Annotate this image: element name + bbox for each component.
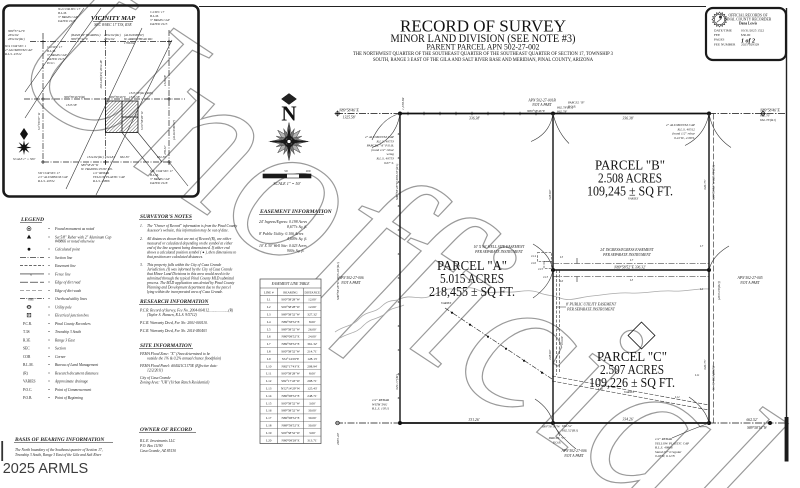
svg-text:50: 50 [284, 169, 288, 173]
svg-text:=: = [48, 297, 50, 301]
svg-text:P.O.B.: P.O.B. [567, 105, 576, 109]
svg-text:SURVEYOR'S NOTES: SURVEYOR'S NOTES [140, 214, 192, 220]
svg-text:R.3E: R.3E [23, 338, 31, 342]
svg-text:03/31/2025 1522: 03/31/2025 1522 [741, 29, 764, 33]
svg-text:336.38': 336.38' [623, 117, 634, 121]
svg-text:Zoning Area: "UR" (Urba: Zoning Area: "UR" (Urban Ranch Residenti… [140, 381, 210, 385]
svg-text:662.52': 662.52' [747, 418, 758, 422]
svg-text:SCALE 1" = 50': SCALE 1" = 50' [273, 181, 300, 186]
svg-text:L7: L7 [629, 258, 634, 262]
svg-text:L13: L13 [266, 387, 272, 391]
svg-text:PAGES: PAGES [714, 38, 725, 42]
svg-text:24' INGRESS/EGRESS EASEMENT: 24' INGRESS/EGRESS EASEMENT [600, 248, 654, 252]
svg-text:S82°17'43"W: S82°17'43"W [281, 379, 300, 383]
svg-text:x: x [398, 395, 400, 400]
svg-text:Township 3 South: Township 3 South [55, 330, 81, 334]
svg-text:L14: L14 [530, 254, 536, 258]
svg-text:T.3S: T.3S [23, 330, 30, 334]
svg-text:N89°58'52"E 336.32': N89°58'52"E 336.32' [613, 265, 646, 269]
svg-text:=: = [48, 314, 50, 318]
svg-text:NOT A PART: NOT A PART [563, 454, 584, 458]
svg-text:8.00': 8.00' [309, 320, 316, 324]
svg-text:N89°57'41"E: N89°57'41"E [70, 37, 88, 41]
svg-text:8' Public Utility: 0.106 Acre: 8' Public Utility: 0.106 Acres [259, 232, 304, 236]
svg-text:=: = [48, 272, 50, 276]
svg-text:x: x [398, 323, 400, 328]
svg-text:x: x [398, 275, 400, 280]
svg-text:SITE INFORMATION: SITE INFORMATION [140, 343, 193, 349]
svg-text:228.69': 228.69' [548, 349, 552, 360]
svg-text:24' Ingress/Egress: 0.198 Acr: 24' Ingress/Egress: 0.198 Acres [259, 220, 308, 224]
svg-text:S00°58'28"W 658.33'(R1): S00°58'28"W 658.33'(R1) [395, 163, 399, 200]
svg-text:The "Owner of Record" informat: The "Owner of Record" information is fro… [147, 224, 238, 228]
svg-text:SOUTH, RANGE 3 EAST OF THE GIL: SOUTH, RANGE 3 EAST OF THE GILA AND SALT… [373, 58, 593, 63]
svg-text:FEMA Flood Zone: "X" (Area det: FEMA Flood Zone: "X" (Area determined to… [139, 352, 211, 356]
svg-text:N89°58'46"E: N89°58'46"E [526, 109, 546, 113]
svg-text:125.43': 125.43' [307, 387, 317, 391]
svg-text:1325.58': 1325.58' [66, 103, 77, 107]
svg-text:8' PUBLIC UTILITY EASEMENT: 8' PUBLIC UTILITY EASEMENT [566, 303, 617, 307]
svg-text:S52°14'29"E: S52°14'29"E [282, 357, 299, 361]
svg-text:Dana Lewis: Dana Lewis [739, 22, 758, 26]
svg-text:L20: L20 [266, 438, 272, 442]
svg-text:submitted through the typical: submitted through the typical Pinal Coun… [147, 277, 234, 281]
svg-text:N: N [281, 102, 296, 126]
svg-text:Pinal County Recorders: Pinal County Recorders [54, 322, 91, 326]
svg-text:1326.08': 1326.08' [163, 75, 167, 86]
svg-text:L4: L4 [267, 320, 271, 324]
svg-text:P.C.R.: P.C.R. [23, 322, 32, 326]
svg-text:S00°58'52"W: S00°58'52"W [281, 350, 300, 354]
svg-text:326.75': 326.75' [703, 179, 707, 190]
svg-text:L9: L9 [267, 357, 271, 361]
svg-text:1325.58': 1325.58' [129, 95, 140, 99]
svg-text:x: x [398, 155, 400, 160]
svg-text:Approximate drainage: Approximate drainage [54, 380, 89, 384]
svg-text:process. The MLD application w: process. The MLD application was denied … [146, 281, 235, 285]
svg-text:N89°58'52"E: N89°58'52"E [281, 320, 299, 324]
svg-text:=: = [48, 248, 50, 252]
svg-text:SCALE 1" = 500': SCALE 1" = 500' [13, 157, 36, 161]
svg-text:=: = [48, 396, 50, 400]
svg-text:2655.20': 2655.20' [336, 433, 340, 445]
svg-text:Electrical junction box: Electrical junction box [54, 314, 89, 318]
svg-text:=: = [48, 289, 50, 293]
svg-text:L5: L5 [267, 327, 271, 331]
svg-text:$30.00: $30.00 [741, 33, 751, 37]
svg-text:L10: L10 [266, 364, 272, 368]
svg-text:DATED 1915: DATED 1915 [149, 22, 168, 26]
svg-text:662.30': 662.30' [120, 155, 130, 159]
svg-text:1325.58': 1325.58' [343, 116, 356, 120]
svg-text:N80°08'52"E: N80°08'52"E [281, 416, 299, 420]
svg-text:P.O.C.: P.O.C. [46, 61, 56, 65]
svg-text:Fence line: Fence line [54, 272, 71, 276]
svg-text:P.O.C.: P.O.C. [23, 388, 32, 392]
svg-text:1324.84'(R1) 1324.84': 1324.84'(R1) 1324.84' [87, 155, 116, 159]
svg-text:12.00': 12.00' [308, 298, 317, 302]
svg-text:R.L.S. 49866: R.L.S. 49866 [92, 179, 110, 183]
svg-text:VICINITY MAP: VICINITY MAP [91, 15, 136, 22]
svg-text:lying within the incorporated: lying within the incorporated area of Ca… [147, 290, 223, 294]
svg-text:PARENT PARCEL APN 502-27-002: PARENT PARCEL APN 502-27-002 [427, 43, 540, 52]
svg-text:662.76'(R1): 662.76'(R1) [760, 118, 777, 122]
svg-text:336.38': 336.38' [469, 117, 480, 121]
svg-text:=: = [48, 227, 50, 231]
svg-text:N89°58'52"E: N89°58'52"E [281, 342, 299, 346]
svg-text:LEGEND: LEGEND [20, 217, 44, 223]
svg-text:VARIES: VARIES [628, 197, 639, 201]
svg-text:N80°08'28"E: N80°08'28"E [281, 438, 299, 442]
svg-text:S00°58'28"W: S00°58'28"W [281, 305, 300, 309]
svg-text:L18: L18 [266, 424, 272, 428]
svg-text:N52°14'29"W: N52°14'29"W [281, 387, 301, 391]
svg-text:end of the line segment being: end of the line segment being dimensione… [147, 246, 230, 250]
svg-text:2.: 2. [140, 237, 143, 241]
svg-text:214.71': 214.71' [307, 350, 317, 354]
svg-text:S00°58'52"W 328.75'(R1): S00°58'52"W 328.75'(R1) [712, 164, 716, 200]
svg-text:(ALIGNMENT): (ALIGNMENT) [172, 120, 176, 140]
svg-text:12.00': 12.00' [308, 305, 317, 309]
svg-text:10' X 30' WELL SITE EASEMENT: 10' X 30' WELL SITE EASEMENT [474, 245, 526, 249]
svg-text:328.69': 328.69' [548, 189, 552, 200]
svg-text:BEARING: BEARING [283, 290, 298, 294]
svg-text:N80°08'52"E: N80°08'52"E [281, 335, 299, 339]
svg-text:Calculated point: Calculated point [55, 248, 81, 252]
svg-text:R.L.S. 43512: R.L.S. 43512 [4, 52, 22, 56]
svg-text:BASIS OF BEARING INFORMATION: BASIS OF BEARING INFORMATION [14, 437, 105, 443]
svg-text:L17: L17 [266, 416, 272, 420]
svg-text:L11: L11 [694, 373, 700, 377]
svg-text:100: 100 [305, 169, 310, 173]
svg-text:x: x [398, 347, 400, 352]
svg-text:P.O. Box 11190: P.O. Box 11190 [139, 444, 163, 448]
svg-text:=: = [48, 371, 50, 375]
svg-text:S89°58'16"W: S89°58'16"W [542, 425, 561, 429]
svg-text:that position are calculated d: that position are calculated distances. [147, 255, 203, 259]
svg-text:313.71': 313.71' [307, 438, 317, 442]
svg-text:128.13': 128.13' [307, 357, 317, 361]
svg-text:x: x [398, 131, 400, 136]
svg-text:Found monument as noted: Found monument as noted [54, 227, 94, 231]
svg-text:S 00°58'28" W: S 00°58'28" W [140, 111, 144, 130]
svg-text:B.L.M.: B.L.M. [23, 363, 34, 367]
svg-text:Point of Commencement: Point of Commencement [54, 388, 92, 392]
svg-text:662.52'(R1): 662.52'(R1) [562, 429, 579, 433]
svg-text:=: = [48, 330, 50, 334]
svg-text:30.00': 30.00' [308, 416, 317, 420]
svg-text:331.26': 331.26' [469, 418, 480, 422]
svg-text:EASEMENT INFORMATION: EASEMENT INFORMATION [259, 209, 333, 215]
svg-text:DATE/TIME: DATE/TIME [714, 29, 732, 33]
svg-text:208.71': 208.71' [307, 379, 317, 383]
svg-text:=: = [48, 322, 50, 326]
svg-text:FEE: FEE [714, 33, 720, 37]
svg-text:2654.48'(R1) 2654.48': 2654.48'(R1) 2654.48' [99, 60, 103, 89]
svg-text:Edge of dirt wash: Edge of dirt wash [54, 289, 81, 293]
svg-text:=: = [48, 281, 50, 285]
svg-text:RESEARCH INFORMATION: RESEARCH INFORMATION [139, 299, 210, 305]
svg-text:334.26': 334.26' [623, 418, 634, 422]
svg-text:12/2/2011): 12/2/2011) [147, 369, 164, 373]
svg-text:L3: L3 [629, 278, 634, 282]
svg-text:N. 40' ROADWAY: N. 40' ROADWAY [712, 365, 716, 391]
svg-text:DATED 1918: DATED 1918 [149, 181, 168, 185]
svg-text:=: = [48, 347, 50, 351]
svg-text:S00°58'28"W: S00°58'28"W [281, 298, 300, 302]
svg-text:DATED 1915: DATED 1915 [57, 19, 76, 23]
svg-text:Utility pole: Utility pole [55, 305, 72, 309]
svg-text:Range 3 East: Range 3 East [54, 338, 76, 342]
svg-text:S00°58'28"W: S00°58'28"W [281, 372, 300, 376]
svg-text:Overhead utility lines: Overhead utility lines [55, 297, 87, 301]
svg-text:30.00': 30.00' [308, 424, 317, 428]
svg-text:329.17'(M): 329.17'(M) [395, 374, 399, 390]
svg-text:P.O.B.: P.O.B. [552, 441, 561, 445]
svg-text:N89°58'46"E(R): N89°58'46"E(R) [63, 95, 85, 99]
svg-text:0.67' S.: 0.67' S. [384, 161, 394, 165]
svg-text:2652.64'(R1): 2652.64'(R1) [8, 37, 25, 41]
svg-text:662.52': 662.52' [562, 424, 572, 428]
svg-text:2652.64': 2652.64' [104, 37, 115, 41]
svg-text:S00°58'52"W: S00°58'52"W [281, 431, 300, 435]
svg-text:S89°58'16"W: S89°58'16"W [747, 426, 768, 430]
svg-text:30.00': 30.00' [308, 409, 317, 413]
svg-text:This property falls within the: This property falls within the City of C… [147, 263, 222, 267]
svg-text:© 2025 ARMLS: © 2025 ARMLS [0, 461, 88, 477]
svg-text:24.00': 24.00' [308, 335, 317, 339]
svg-text:1766.64': 1766.64' [124, 41, 135, 45]
svg-text:N82°17'43"E: N82°17'43"E [281, 364, 299, 368]
svg-text:=: = [48, 388, 50, 392]
svg-text:outside the 1% & 0.2% annual c: outside the 1% & 0.2% annual chance floo… [147, 357, 222, 361]
svg-text:L3: L3 [267, 313, 271, 317]
svg-text:L12: L12 [266, 379, 272, 383]
svg-text:=: = [48, 355, 50, 359]
svg-text:326.75': 326.75' [703, 359, 707, 370]
svg-text:x: x [398, 251, 400, 256]
svg-text:THE NORTHWEST QUARTER OF THE S: THE NORTHWEST QUARTER OF THE SOUTHEAST Q… [353, 52, 613, 57]
svg-text:3.00': 3.00' [309, 431, 316, 435]
svg-text:(R): (R) [23, 371, 29, 375]
svg-text:Planning and Development depar: Planning and Development department due … [146, 286, 231, 290]
svg-text:L16: L16 [266, 409, 272, 413]
svg-text:Section line: Section line [55, 256, 73, 260]
svg-text:that Minor Land Divisions in t: that Minor Land Divisions in this area w… [147, 272, 230, 276]
svg-text:APN 502-27-006: APN 502-27-006 [560, 449, 586, 453]
svg-text:L2: L2 [699, 287, 704, 291]
svg-text:PER SEPARATE INSTRUMENT: PER SEPARATE INSTRUMENT [566, 308, 616, 312]
svg-text:COR: COR [23, 355, 31, 359]
svg-text:327.32': 327.32' [307, 313, 317, 317]
svg-text:x: x [398, 203, 400, 208]
svg-text:x: x [398, 299, 400, 304]
svg-text:APN 502-27-001B: APN 502-27-001B [527, 99, 556, 103]
svg-text:L14: L14 [266, 394, 272, 398]
svg-text:L13: L13 [542, 275, 548, 279]
svg-text:VARIES: VARIES [624, 390, 635, 394]
svg-text:8.00': 8.00' [309, 372, 316, 376]
svg-text:R.L.S. 10511: R.L.S. 10511 [371, 407, 390, 411]
svg-text:Section: Section [55, 347, 66, 351]
svg-text:L8: L8 [556, 326, 560, 331]
svg-text:NOT A PART: NOT A PART [531, 103, 552, 107]
svg-text:S00°58'52"W: S00°58'52"W [281, 401, 300, 405]
svg-text:x: x [398, 227, 400, 232]
svg-text:=: = [48, 235, 50, 239]
svg-text:=: = [48, 256, 50, 260]
svg-text:26.00': 26.00' [308, 327, 317, 331]
svg-text:S89°58'52"W: S89°58'52"W [281, 313, 300, 317]
svg-text:=: = [48, 338, 50, 342]
svg-text:N80°08'52"E: N80°08'52"E [281, 394, 299, 398]
svg-text:S89°58'52"W: S89°58'52"W [281, 409, 300, 413]
svg-text:#49866 or noted otherwise: #49866 or noted otherwise [55, 239, 95, 243]
svg-text:L1: L1 [267, 298, 271, 302]
svg-text:APN 502-27-005: APN 502-27-005 [736, 276, 762, 280]
svg-text:1.: 1. [140, 224, 143, 228]
svg-text:NOT A PART: NOT A PART [340, 281, 361, 285]
svg-text:NOT A PART: NOT A PART [739, 281, 760, 285]
svg-text:Jurisdiction. (I) was informed: Jurisdiction. (I) was informed by the Ci… [147, 268, 233, 272]
svg-text:L19: L19 [266, 431, 272, 435]
svg-text:x: x [30, 272, 32, 276]
svg-text:1 of 2: 1 of 2 [741, 39, 755, 45]
svg-text:361.32': 361.32' [307, 342, 317, 346]
svg-text:248.71': 248.71' [307, 394, 317, 398]
svg-text:(2655.06'(R1)): (2655.06'(R1)) [717, 281, 721, 300]
svg-text:S89°58'52"W: S89°58'52"W [281, 327, 300, 331]
svg-text:S 0°06'30" W: S 0°06'30" W [37, 113, 41, 130]
svg-text:900± Sq. ft.: 900± Sq. ft. [287, 249, 305, 253]
svg-text:N89°58'46"E: N89°58'46"E [338, 109, 359, 113]
svg-text:3.: 3. [140, 263, 143, 267]
svg-text:OHU: OHU [28, 298, 35, 301]
svg-text:PARCEL "C": PARCEL "C" [548, 436, 566, 440]
svg-text:=: = [48, 305, 50, 309]
svg-text:478.32': 478.32' [163, 145, 167, 155]
svg-text:S00°58'28"W 2655.20'(R1): S00°58'28"W 2655.20'(R1) [336, 261, 340, 300]
svg-text:Corner: Corner [55, 355, 66, 359]
svg-text:PER SEPARATE INSTRUMENT: PER SEPARATE INSTRUMENT [602, 253, 652, 257]
svg-text:L15: L15 [266, 401, 272, 405]
svg-text:OWNER OF RECORD: OWNER OF RECORD [140, 427, 192, 433]
svg-text:FEMA Flood Panel: #04021C1175E: FEMA Flood Panel: #04021C1175E (Effectiv… [139, 364, 218, 368]
svg-text:L11: L11 [266, 372, 272, 376]
svg-text:VARIES: VARIES [23, 380, 36, 384]
svg-text:PER SEPARATE INSTRUMENT: PER SEPARATE INSTRUMENT [474, 250, 524, 254]
svg-text:L5: L5 [559, 255, 564, 259]
svg-text:N89°58'46"E: N89°58'46"E [759, 109, 780, 113]
svg-text:R.L.S. 40534: R.L.S. 40534 [37, 179, 55, 183]
svg-text:3.00': 3.00' [309, 401, 316, 405]
svg-text:APN 502-27-006: APN 502-27-006 [337, 276, 363, 280]
svg-text:L7: L7 [267, 342, 271, 346]
svg-text:P.O.B.: P.O.B. [23, 396, 32, 400]
svg-text:LINE #: LINE # [264, 290, 274, 294]
svg-text:Bureau of Land Management: Bureau of Land Management [55, 363, 99, 367]
svg-text:Edge of dirt road: Edge of dirt road [54, 281, 81, 285]
svg-text:218,455 ± SQ FT.: 218,455 ± SQ FT. [429, 285, 515, 300]
svg-text:EASEMENT LINE TABLE: EASEMENT LINE TABLE [271, 282, 311, 286]
svg-text:220.69': 220.69' [560, 336, 564, 345]
svg-text:VARIES: VARIES [441, 301, 452, 305]
svg-text:862.78': 862.78' [557, 110, 567, 114]
svg-text:Point of Beginning: Point of Beginning [54, 396, 83, 400]
svg-text:208.94': 208.94' [307, 364, 317, 368]
svg-text:E: E [28, 313, 30, 317]
svg-text:L6: L6 [267, 335, 271, 339]
svg-text:=: = [48, 264, 50, 268]
svg-text:=: = [48, 363, 50, 367]
svg-text:109,226 ± SQ FT.: 109,226 ± SQ FT. [589, 376, 675, 391]
svg-text:City of Casa Grande: City of Casa Grande [140, 376, 171, 380]
svg-text:SEC: SEC [23, 347, 30, 351]
svg-text:L7: L7 [699, 244, 704, 248]
svg-text:10' X 30' Well Site: 0.023 Ac: 10' X 30' Well Site: 0.023 Acres [259, 244, 307, 248]
svg-text:L8: L8 [267, 350, 271, 354]
svg-text:DISTANCE: DISTANCE [304, 290, 320, 294]
svg-text:L12: L12 [674, 395, 680, 399]
svg-text:=: = [48, 380, 50, 384]
svg-text:FEE NUMBER: FEE NUMBER [714, 42, 736, 46]
svg-text:Easement line: Easement line [54, 264, 76, 268]
svg-text:measured or calculated dependi: measured or calculated depending on the … [147, 242, 233, 246]
svg-text:L2: L2 [267, 305, 271, 309]
svg-text:0: 0 [263, 169, 265, 173]
svg-text:Research document distances: Research document distances [54, 371, 99, 375]
svg-text:N89°58'46"E: N89°58'46"E [108, 95, 126, 99]
svg-text:R.L.E. Investments LLC: R.L.E. Investments LLC [139, 439, 176, 443]
svg-text:662.76': 662.76' [760, 114, 770, 118]
svg-text:N89°58'52"E: N89°58'52"E [281, 424, 299, 428]
svg-text:L16: L16 [530, 261, 536, 265]
svg-text:L15: L15 [537, 267, 543, 271]
